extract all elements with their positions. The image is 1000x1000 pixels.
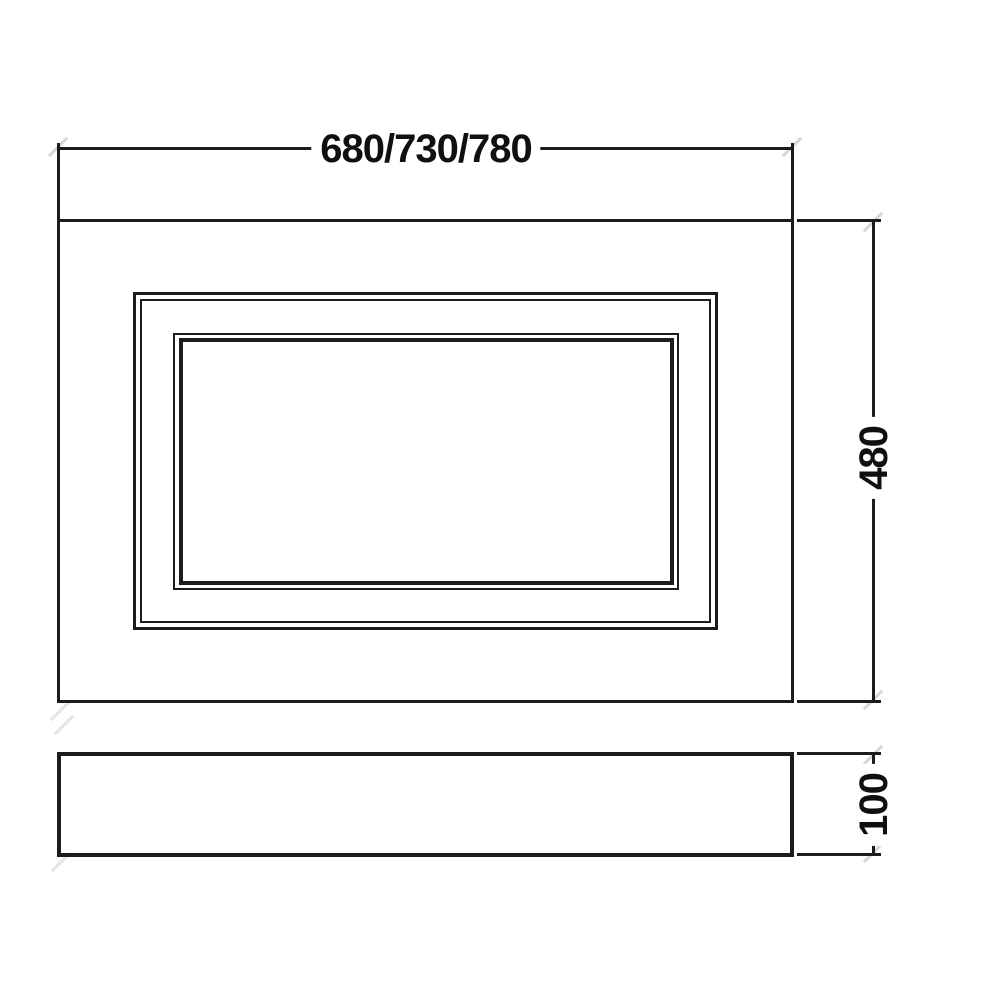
technical-drawing-canvas: 680/730/780 480 100 <box>0 0 1000 1000</box>
width-extension-line-right <box>791 143 794 219</box>
width-dimension-label: 680/730/780 <box>311 127 540 171</box>
height-extension-line-bottom <box>797 700 881 703</box>
plinth-extension-line-top <box>797 752 881 755</box>
plinth-extension-line-bottom <box>797 853 881 856</box>
width-extension-line-left <box>57 143 60 219</box>
height-extension-line-top <box>797 219 881 222</box>
height-dimension-label: 480 <box>852 417 896 499</box>
plinth-dimension-label: 100 <box>852 764 896 846</box>
dimension-tick <box>54 715 75 736</box>
plinth-outline <box>57 752 794 857</box>
recess-inner-line <box>179 338 674 585</box>
